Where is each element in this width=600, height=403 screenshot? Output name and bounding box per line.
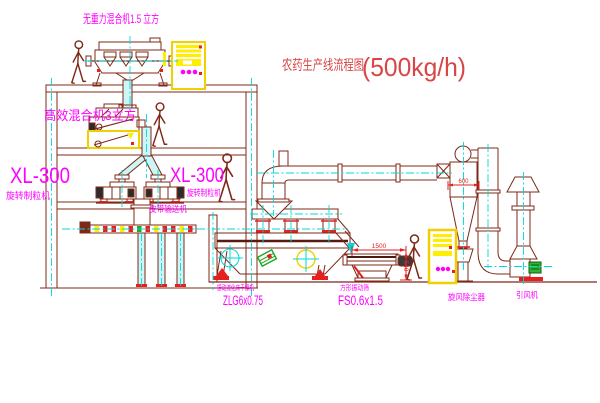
granulator-feed-chute <box>118 156 162 175</box>
label-cyclone: 旋风除尘器 <box>448 292 485 302</box>
square-vibrating-sieve <box>336 231 412 281</box>
control-cabinet-top <box>172 42 205 89</box>
dim-sieve-height: 540 <box>402 261 409 272</box>
person-figure <box>153 103 167 146</box>
label-granulator-mid-model: XL-300 <box>170 164 224 187</box>
diagram-title: 农药生产线流程图 <box>282 57 364 73</box>
label-dryer-model: ZLG6x0.75 <box>223 293 263 308</box>
dryer-green-tag <box>258 250 277 266</box>
pesticide-line-diagram: 1500 540 600 农药生产线流程图 (500kg/h) 无重力混合机1.… <box>0 0 600 403</box>
dim-cyclone-diameter: 600 <box>458 179 469 185</box>
control-cabinet-bottom <box>429 230 456 283</box>
granulator-left <box>96 175 138 203</box>
diagram-capacity: (500kg/h) <box>362 52 466 82</box>
exhaust-stack <box>507 177 539 259</box>
label-sieve-name: 方形振动筛 <box>340 283 369 292</box>
label-granulator-left-name: 旋转制粒机 <box>6 190 50 202</box>
label-dryer-name: 振动流化床干燥机 <box>217 283 254 292</box>
label-granulator-left-model: XL-300 <box>10 163 70 188</box>
label-granulator-mid-name: 旋转制粒机 <box>187 187 221 198</box>
dim-sieve-length: 1500 <box>372 243 387 250</box>
induced-draft-fan <box>510 259 543 281</box>
label-gravity-free-mixer: 无重力混合机1.5 立方 <box>83 11 159 26</box>
fluid-bed-dryer <box>213 151 350 280</box>
process-flow-drawing: 1500 540 600 农药生产线流程图 (500kg/h) 无重力混合机1.… <box>0 0 600 403</box>
label-belt-conveyor: 皮带输送机 <box>149 204 187 214</box>
person-figure <box>407 235 422 280</box>
label-fan: 引风机 <box>516 290 538 300</box>
label-sieve-model: FS0.6x1.5 <box>338 293 383 308</box>
person-figure <box>72 41 86 83</box>
label-high-efficiency-mixer: 高效混合机3立方 <box>44 108 136 123</box>
